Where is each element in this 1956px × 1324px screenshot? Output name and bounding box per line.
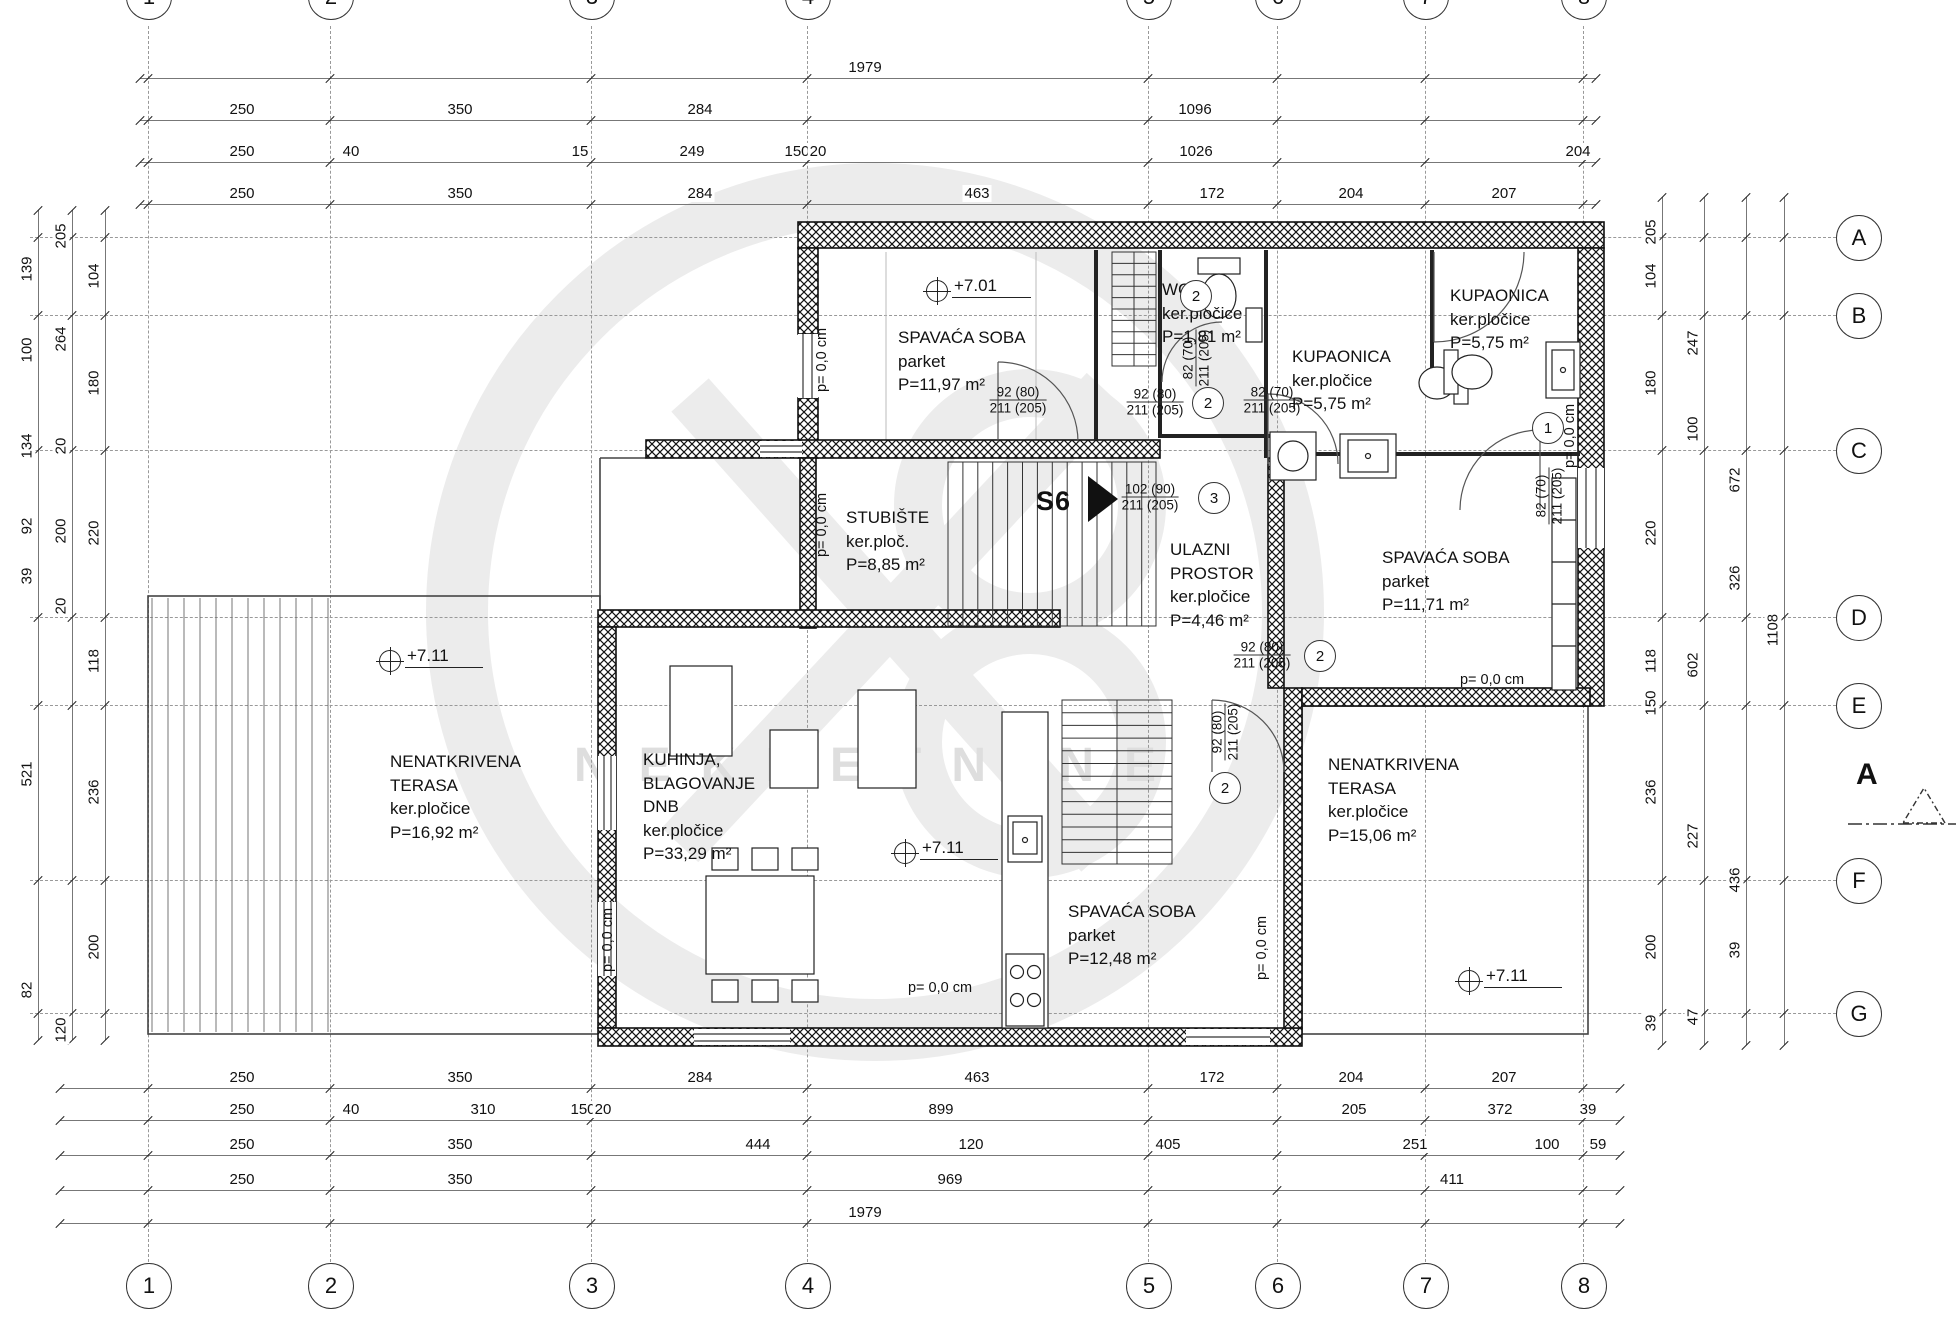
door-number-bubble: 1 — [1532, 412, 1564, 444]
room-label: P=8,85 m² — [846, 553, 925, 576]
room-label: NENATKRIVENA — [390, 750, 521, 773]
door-number-bubble: 3 — [1198, 482, 1230, 514]
room-label: STUBIŠTE — [846, 506, 929, 529]
door-number-bubble: 2 — [1209, 772, 1241, 804]
room-label: SPAVAĆA SOBA — [1382, 546, 1510, 569]
elevation-symbol-icon — [926, 280, 948, 302]
floor-level-note: p= 0,0 cm — [1562, 404, 1578, 468]
door-size-text: 211 (205) — [1234, 656, 1291, 671]
elevation-symbol-icon — [894, 842, 916, 864]
room-label: DNB — [643, 795, 679, 818]
room-label: TERASA — [1328, 777, 1396, 800]
room-label: P=33,29 m² — [643, 842, 731, 865]
room-label: parket — [898, 350, 945, 373]
floor-level-note: p= 0,0 cm — [814, 328, 830, 392]
door-number-bubble: 2 — [1192, 387, 1224, 419]
floor-level-note: p= 0,0 cm — [908, 980, 972, 996]
door-size-label: 82 (70)211 (205) — [1534, 468, 1565, 525]
door-size-label: 92 (80)211 (205) — [1234, 640, 1291, 671]
elevation-symbol-icon — [379, 650, 401, 672]
text-layer: SPAVAĆA SOBAparketP=11,97 m²WCker.pločic… — [0, 0, 1956, 1324]
door-size-label: 102 (90)211 (205) — [1122, 482, 1179, 513]
room-label: P=11,97 m² — [898, 373, 985, 396]
door-size-text: 102 (90) — [1122, 482, 1179, 498]
room-label: ker.pločice — [1292, 369, 1372, 392]
room-label: P=15,06 m² — [1328, 824, 1416, 847]
door-size-label: 82 (70)211 (205) — [1181, 330, 1212, 387]
door-size-label: 92 (80)211 (205) — [1127, 387, 1184, 418]
room-label: TERASA — [390, 774, 458, 797]
room-label: ker.pločice — [1328, 800, 1408, 823]
door-size-text: 211 (205) — [1127, 403, 1184, 418]
floor-level-note: p= 0,0 cm — [600, 908, 616, 972]
floor-level-note: p= 0,0 cm — [1460, 672, 1524, 688]
door-size-text: 82 (70) — [1534, 468, 1550, 525]
door-size-text: 82 (70) — [1244, 385, 1301, 401]
elevation-symbol-icon — [1458, 970, 1480, 992]
room-label: KUPAONICA — [1450, 284, 1549, 307]
room-label: parket — [1382, 570, 1429, 593]
room-label: P=16,92 m² — [390, 821, 478, 844]
room-label: P=12,48 m² — [1068, 947, 1156, 970]
room-label: P=11,71 m² — [1382, 593, 1469, 616]
door-number-bubble: 2 — [1304, 640, 1336, 672]
room-label: PROSTOR — [1170, 562, 1254, 585]
elevation-marker: +7.11 — [405, 646, 483, 668]
door-size-text: 211 (205) — [1226, 704, 1241, 761]
room-label: P=5,75 m² — [1292, 392, 1371, 415]
room-label: ker.pločice — [390, 797, 470, 820]
door-size-text: 211 (205) — [1550, 468, 1565, 525]
room-label: KUHINJA, — [643, 748, 720, 771]
room-label: ker.ploč. — [846, 530, 909, 553]
room-label: BLAGOVANJE — [643, 772, 755, 795]
stair-id-label: S6 — [1036, 486, 1071, 517]
room-label: P=4,46 m² — [1170, 609, 1249, 632]
room-label: ker.pločice — [643, 819, 723, 842]
door-size-text: 92 (80) — [1234, 640, 1291, 656]
door-size-text: 211 (205) — [1197, 330, 1212, 387]
elevation-marker: +7.11 — [1484, 966, 1562, 988]
room-label: parket — [1068, 924, 1115, 947]
door-size-text: 211 (205) — [1244, 401, 1301, 416]
door-size-text: 92 (80) — [1127, 387, 1184, 403]
door-size-text: 92 (80) — [990, 385, 1047, 401]
door-size-text: 82 (70) — [1181, 330, 1197, 387]
room-label: KUPAONICA — [1292, 345, 1391, 368]
room-label: NENATKRIVENA — [1328, 753, 1459, 776]
door-number-bubble: 2 — [1180, 280, 1212, 312]
floor-level-note: p= 0,0 cm — [1254, 916, 1270, 980]
floor-plan-drawing: NEKRETNINE 1122334455667788ABCDEFGA — [0, 0, 1956, 1324]
elevation-marker: +7.01 — [952, 276, 1031, 298]
room-label: SPAVAĆA SOBA — [1068, 900, 1196, 923]
door-size-text: 211 (205) — [1122, 498, 1179, 513]
door-size-label: 82 (70)211 (205) — [1244, 385, 1301, 416]
room-label: SPAVAĆA SOBA — [898, 326, 1026, 349]
room-label: ker.pločice — [1450, 308, 1530, 331]
door-size-text: 211 (205) — [990, 401, 1047, 416]
door-size-label: 92 (80)211 (205) — [990, 385, 1047, 416]
room-label: ker.pločice — [1170, 585, 1250, 608]
door-size-label: 92 (80)211 (205) — [1210, 704, 1241, 761]
floor-level-note: p= 0,0 cm — [814, 493, 830, 557]
door-size-text: 92 (80) — [1210, 704, 1226, 761]
elevation-marker: +7.11 — [920, 838, 998, 860]
room-label: ULAZNI — [1170, 538, 1230, 561]
room-label: P=5,75 m² — [1450, 331, 1529, 354]
